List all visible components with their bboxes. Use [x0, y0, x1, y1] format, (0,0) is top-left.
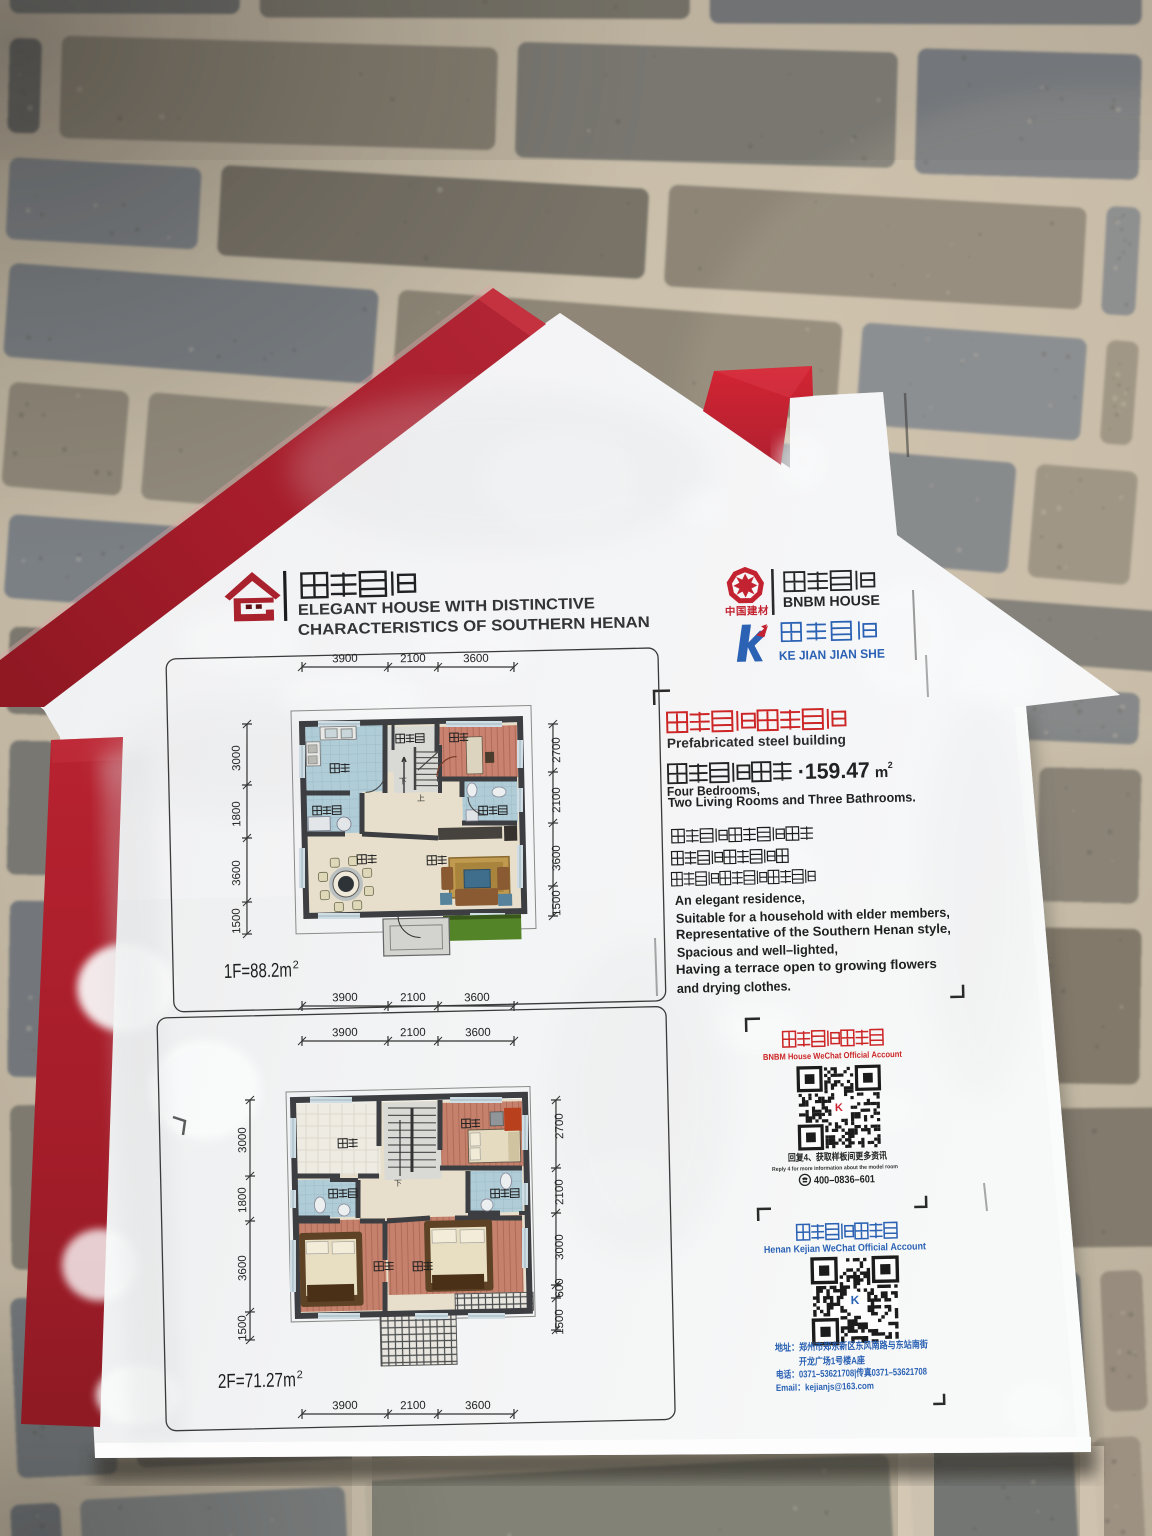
- svg-text:2100: 2100: [400, 653, 426, 666]
- svg-text:K: K: [850, 1293, 859, 1307]
- svg-text:3900: 3900: [332, 1027, 358, 1040]
- svg-text:Email：kejianjs@163.com: Email：kejianjs@163.com: [776, 1380, 874, 1393]
- svg-text:上: 上: [417, 794, 425, 803]
- svg-text:K: K: [835, 1102, 843, 1114]
- svg-text:600: 600: [554, 1278, 566, 1297]
- svg-text:3000: 3000: [237, 1127, 250, 1153]
- svg-text:2100: 2100: [551, 787, 564, 813]
- svg-text:1F=88.2m: 1F=88.2m: [224, 959, 292, 983]
- svg-text:2: 2: [293, 959, 299, 971]
- svg-text:2700: 2700: [551, 737, 564, 763]
- svg-text:1500: 1500: [554, 1309, 567, 1335]
- svg-text:KE JIAN JIAN SHE: KE JIAN JIAN SHE: [779, 647, 885, 663]
- svg-text:An elegant residence,: An elegant residence,: [675, 890, 805, 908]
- svg-text:BNBM HOUSE: BNBM HOUSE: [783, 592, 880, 610]
- svg-text:下: 下: [399, 777, 407, 786]
- svg-text:3600: 3600: [237, 1255, 250, 1281]
- svg-text:1500: 1500: [231, 908, 244, 934]
- svg-text:3900: 3900: [332, 653, 358, 666]
- svg-text:2100: 2100: [400, 1027, 426, 1040]
- svg-text:3000: 3000: [231, 745, 244, 771]
- svg-text:1500: 1500: [237, 1315, 250, 1341]
- svg-text:m: m: [875, 764, 889, 781]
- svg-text:and drying clothes.: and drying clothes.: [677, 978, 791, 996]
- svg-text:3600: 3600: [551, 845, 564, 871]
- svg-text:3000: 3000: [554, 1234, 567, 1260]
- svg-text:1500: 1500: [551, 890, 564, 916]
- svg-text:2100: 2100: [400, 1400, 426, 1413]
- svg-text:2100: 2100: [400, 992, 426, 1005]
- svg-text:3600: 3600: [463, 653, 489, 666]
- svg-text:下: 下: [394, 1179, 402, 1188]
- svg-text:2F=71.27m: 2F=71.27m: [218, 1369, 296, 1393]
- svg-text:400–0836–601: 400–0836–601: [814, 1173, 875, 1186]
- svg-text:2700: 2700: [554, 1113, 567, 1139]
- svg-text:1800: 1800: [231, 801, 244, 827]
- svg-text:3600: 3600: [231, 860, 244, 886]
- svg-text:3600: 3600: [464, 992, 490, 1005]
- svg-text:回复4、获取样板间更多资讯: 回复4、获取样板间更多资讯: [788, 1150, 888, 1164]
- svg-text:·159.47: ·159.47: [798, 757, 871, 784]
- svg-text:3600: 3600: [465, 1400, 491, 1413]
- svg-text:3900: 3900: [332, 1400, 358, 1413]
- svg-text:2: 2: [888, 760, 893, 770]
- svg-text:2100: 2100: [554, 1179, 567, 1205]
- svg-text:2: 2: [297, 1369, 303, 1381]
- svg-text:1800: 1800: [237, 1187, 250, 1213]
- svg-text:3900: 3900: [332, 992, 358, 1005]
- svg-text:3600: 3600: [465, 1027, 491, 1040]
- svg-text:中国建材: 中国建材: [725, 604, 769, 618]
